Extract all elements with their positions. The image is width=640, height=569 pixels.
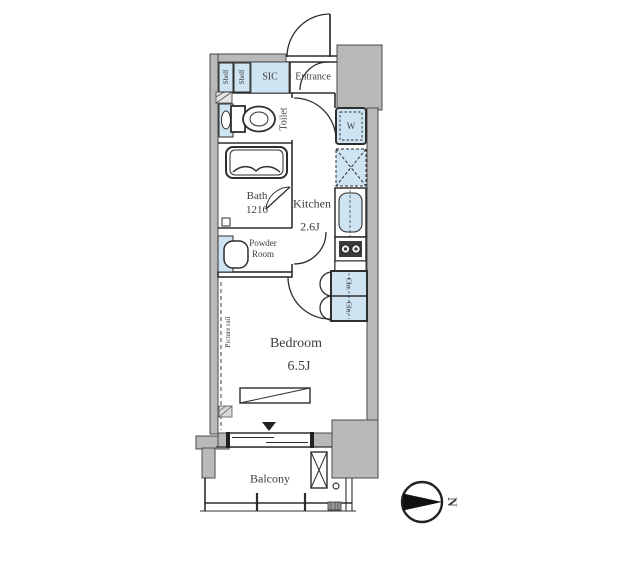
refrigerator-space-icon bbox=[336, 149, 366, 186]
room-label-entrance: Entrance bbox=[295, 72, 331, 83]
floorplan-drawing bbox=[0, 0, 640, 569]
desk-counter bbox=[240, 388, 310, 403]
window-marker-icon bbox=[262, 422, 276, 431]
room-label-balcony: Balcony bbox=[250, 472, 290, 487]
washbasin-icon bbox=[218, 236, 248, 272]
ps-mark bbox=[219, 406, 232, 417]
room-size-bath: 1216 bbox=[246, 204, 268, 216]
room-size-kitchen: 2.6J bbox=[300, 220, 320, 235]
room-label-powder-2: Room bbox=[252, 249, 274, 259]
meter-box-icon bbox=[216, 92, 232, 103]
closet-top-label: Clo. bbox=[345, 278, 354, 291]
washer-label: W bbox=[347, 121, 356, 131]
balcony-window bbox=[226, 432, 314, 448]
stove-icon bbox=[335, 237, 366, 261]
room-label-sic: SIC bbox=[262, 72, 278, 83]
toilet-icon bbox=[231, 106, 275, 132]
room-label-kitchen: Kitchen bbox=[293, 197, 331, 212]
shelf-bottom-label: Shelf bbox=[238, 70, 246, 85]
closet-bottom-label: Clo. bbox=[345, 302, 354, 315]
floorplan-page: Shelf Shelf SIC Entrance Toilet Bath 121… bbox=[0, 0, 640, 569]
drain-icon bbox=[328, 502, 341, 510]
picture-rail-label: Picture rail bbox=[224, 317, 232, 348]
room-label-powder-1: Powder bbox=[249, 238, 277, 248]
room-size-bedroom: 6.5J bbox=[288, 359, 311, 375]
evacuation-hatch-icon bbox=[311, 452, 327, 488]
room-label-bedroom: Bedroom bbox=[270, 336, 322, 352]
counter-gap bbox=[335, 261, 366, 271]
bathtub-icon bbox=[226, 147, 287, 178]
room-label-bath: Bath bbox=[247, 190, 268, 202]
bath-corner-box bbox=[222, 218, 230, 226]
balcony-fixture-dot bbox=[333, 483, 339, 489]
shelf-top-label: Shelf bbox=[222, 70, 230, 85]
north-compass-icon bbox=[402, 482, 442, 522]
north-label: N bbox=[444, 497, 460, 506]
room-label-toilet: Toilet bbox=[279, 107, 290, 130]
